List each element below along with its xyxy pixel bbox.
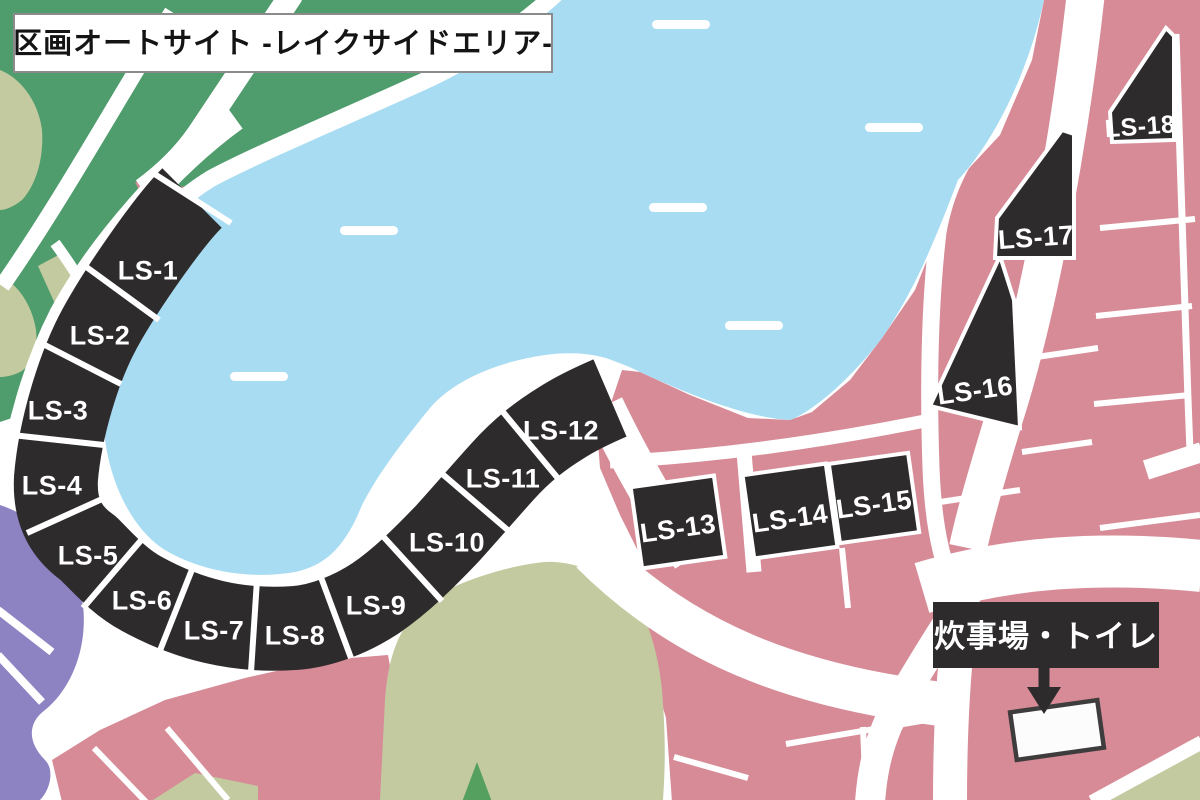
- site-label: LS-9: [346, 590, 407, 620]
- site-ls-5[interactable]: LS-5: [58, 540, 119, 570]
- site-label: LS-6: [112, 585, 173, 615]
- site-ls-17[interactable]: LS-17: [997, 220, 1075, 255]
- facility-label: 炊事場・トイレ: [934, 619, 1158, 654]
- site-ls-9[interactable]: LS-9: [346, 590, 407, 620]
- site-ls-12[interactable]: LS-12: [523, 415, 599, 445]
- site-ls-6[interactable]: LS-6: [112, 585, 173, 615]
- ripple-icon: [230, 372, 288, 381]
- site-ls-7[interactable]: LS-7: [184, 615, 245, 645]
- map-title-box: 区画オートサイト -レイクサイドエリア-: [13, 14, 553, 72]
- site-label: LS-5: [58, 540, 119, 570]
- ripple-icon: [340, 226, 398, 235]
- ripple-icon: [865, 123, 923, 132]
- site-label: LS-3: [28, 395, 89, 425]
- site-label: LS-11: [466, 463, 541, 493]
- site-label: LS-1: [118, 255, 179, 285]
- map-canvas: LS-1 LS-2 LS-3 LS-4 LS-5 LS-6 LS-7 LS-8 …: [0, 0, 1200, 800]
- facility-building: [1010, 700, 1104, 760]
- site-ls-3[interactable]: LS-3: [28, 395, 89, 425]
- site-label: LS-17: [997, 220, 1075, 255]
- site-label: LS-2: [70, 320, 131, 350]
- site-ls-18[interactable]: LS-18: [1104, 110, 1176, 143]
- site-ls-2[interactable]: LS-2: [70, 320, 131, 350]
- site-label: LS-4: [22, 470, 83, 500]
- ripple-icon: [725, 321, 783, 330]
- site-ls-4[interactable]: LS-4: [22, 470, 83, 500]
- site-label: LS-8: [265, 620, 326, 650]
- page-title: 区画オートサイト -レイクサイドエリア-: [13, 27, 553, 60]
- site-ls-1[interactable]: LS-1: [118, 255, 179, 285]
- ripple-icon: [652, 20, 710, 29]
- site-label: LS-7: [184, 615, 245, 645]
- site-ls-11[interactable]: LS-11: [466, 463, 541, 493]
- site-label: LS-18: [1104, 110, 1176, 143]
- campground-map: LS-1 LS-2 LS-3 LS-4 LS-5 LS-6 LS-7 LS-8 …: [0, 0, 1200, 800]
- site-label: LS-12: [523, 415, 599, 445]
- site-label: LS-10: [409, 527, 485, 557]
- site-ls-8[interactable]: LS-8: [265, 620, 326, 650]
- ripple-icon: [649, 203, 707, 212]
- site-ls-10[interactable]: LS-10: [409, 527, 485, 557]
